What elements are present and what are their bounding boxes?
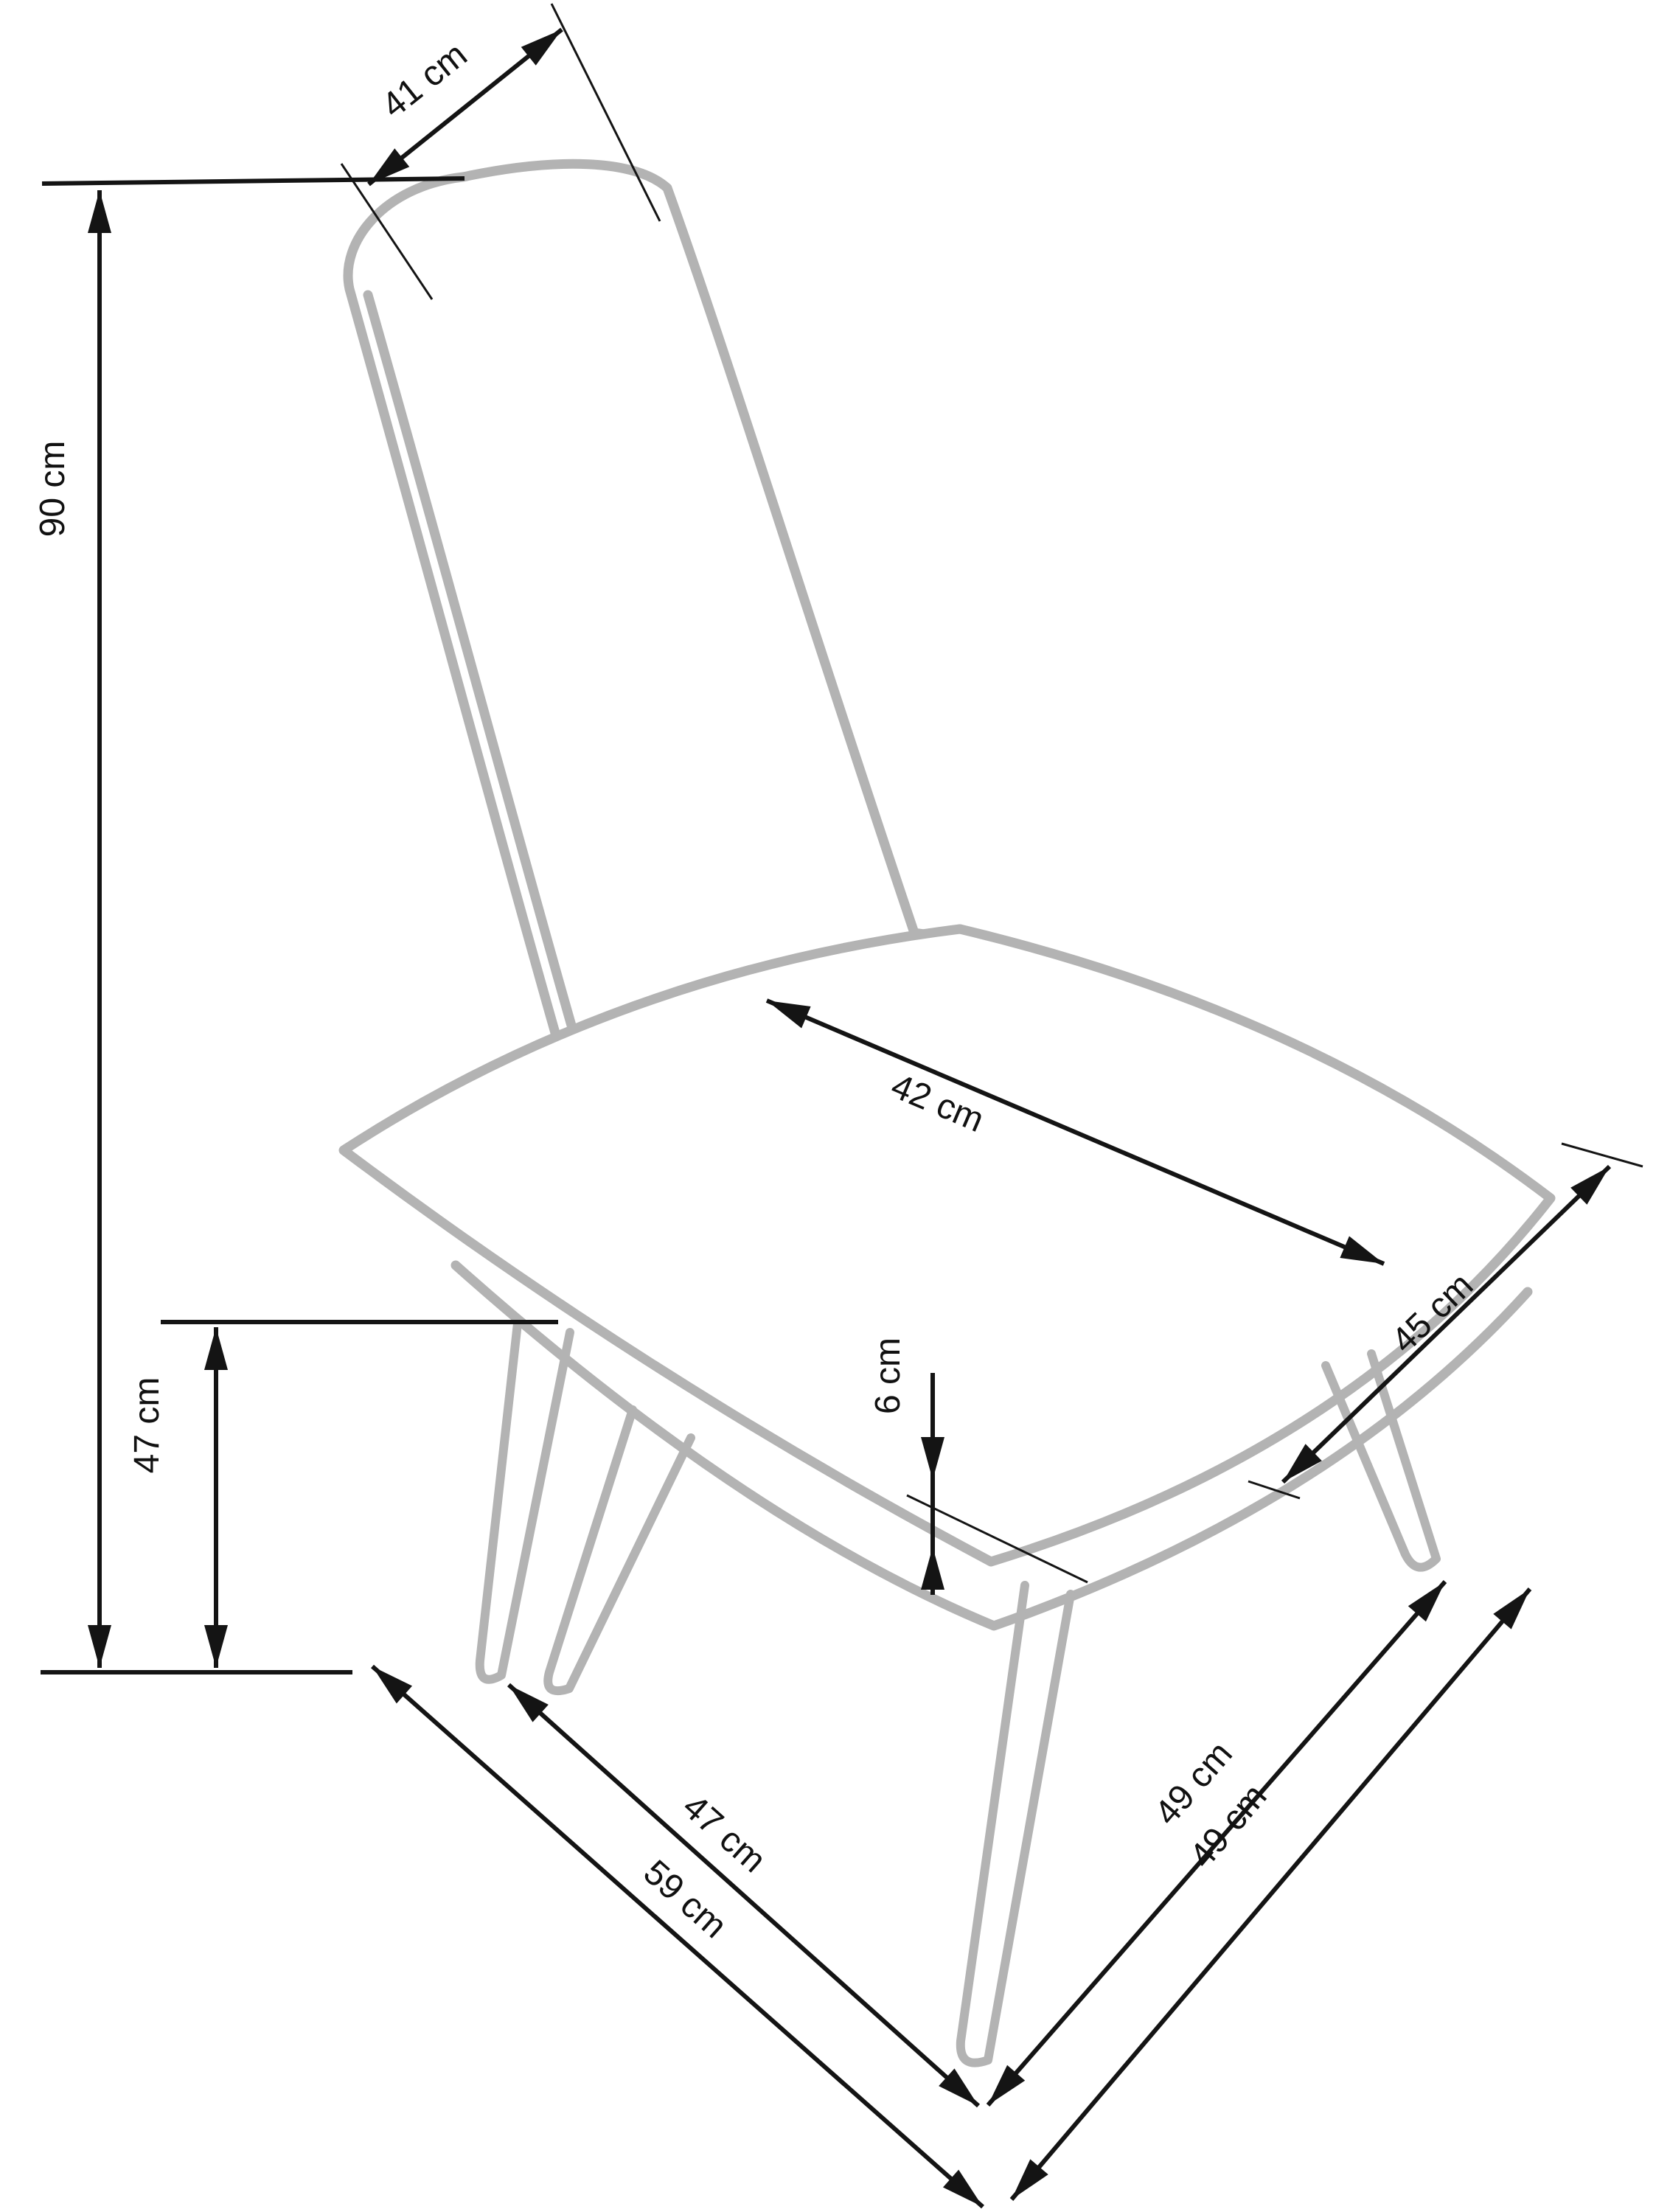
- ext-41-right: [552, 4, 660, 221]
- arrow-47h-top: [204, 1327, 228, 1370]
- dim-49-outer-line: [1012, 1589, 1530, 2199]
- label-base-depth: 47 cm: [675, 1787, 773, 1880]
- arrow-47h-bottom: [204, 1625, 228, 1668]
- arrow-90-top: [88, 190, 111, 233]
- ref-line-top-of-backrest: [42, 178, 465, 184]
- arrow-90-bottom: [88, 1625, 111, 1668]
- leg-back-left-inner: [548, 1410, 691, 1691]
- dim-59-line: [372, 1666, 983, 2207]
- label-seat-height: 47 cm: [128, 1377, 167, 1474]
- label-cushion-thickness: 6 cm: [869, 1338, 908, 1414]
- ext-45-top: [1562, 1144, 1643, 1166]
- dim-47-depth-line: [509, 1685, 978, 2106]
- label-total-height: 90 cm: [33, 441, 72, 538]
- label-overall-depth: 59 cm: [636, 1853, 734, 1946]
- leg-back-left: [480, 1324, 570, 1680]
- chair-dimension-diagram-page: 41 cm90 cm47 cm42 cm6 cm45 cm47 cm59 cm4…: [0, 0, 1670, 2212]
- chair-dimension-diagram: 41 cm90 cm47 cm42 cm6 cm45 cm47 cm59 cm4…: [0, 0, 1670, 2212]
- arrow-6-lower: [921, 1547, 944, 1590]
- leg-front-center: [961, 1585, 1071, 2063]
